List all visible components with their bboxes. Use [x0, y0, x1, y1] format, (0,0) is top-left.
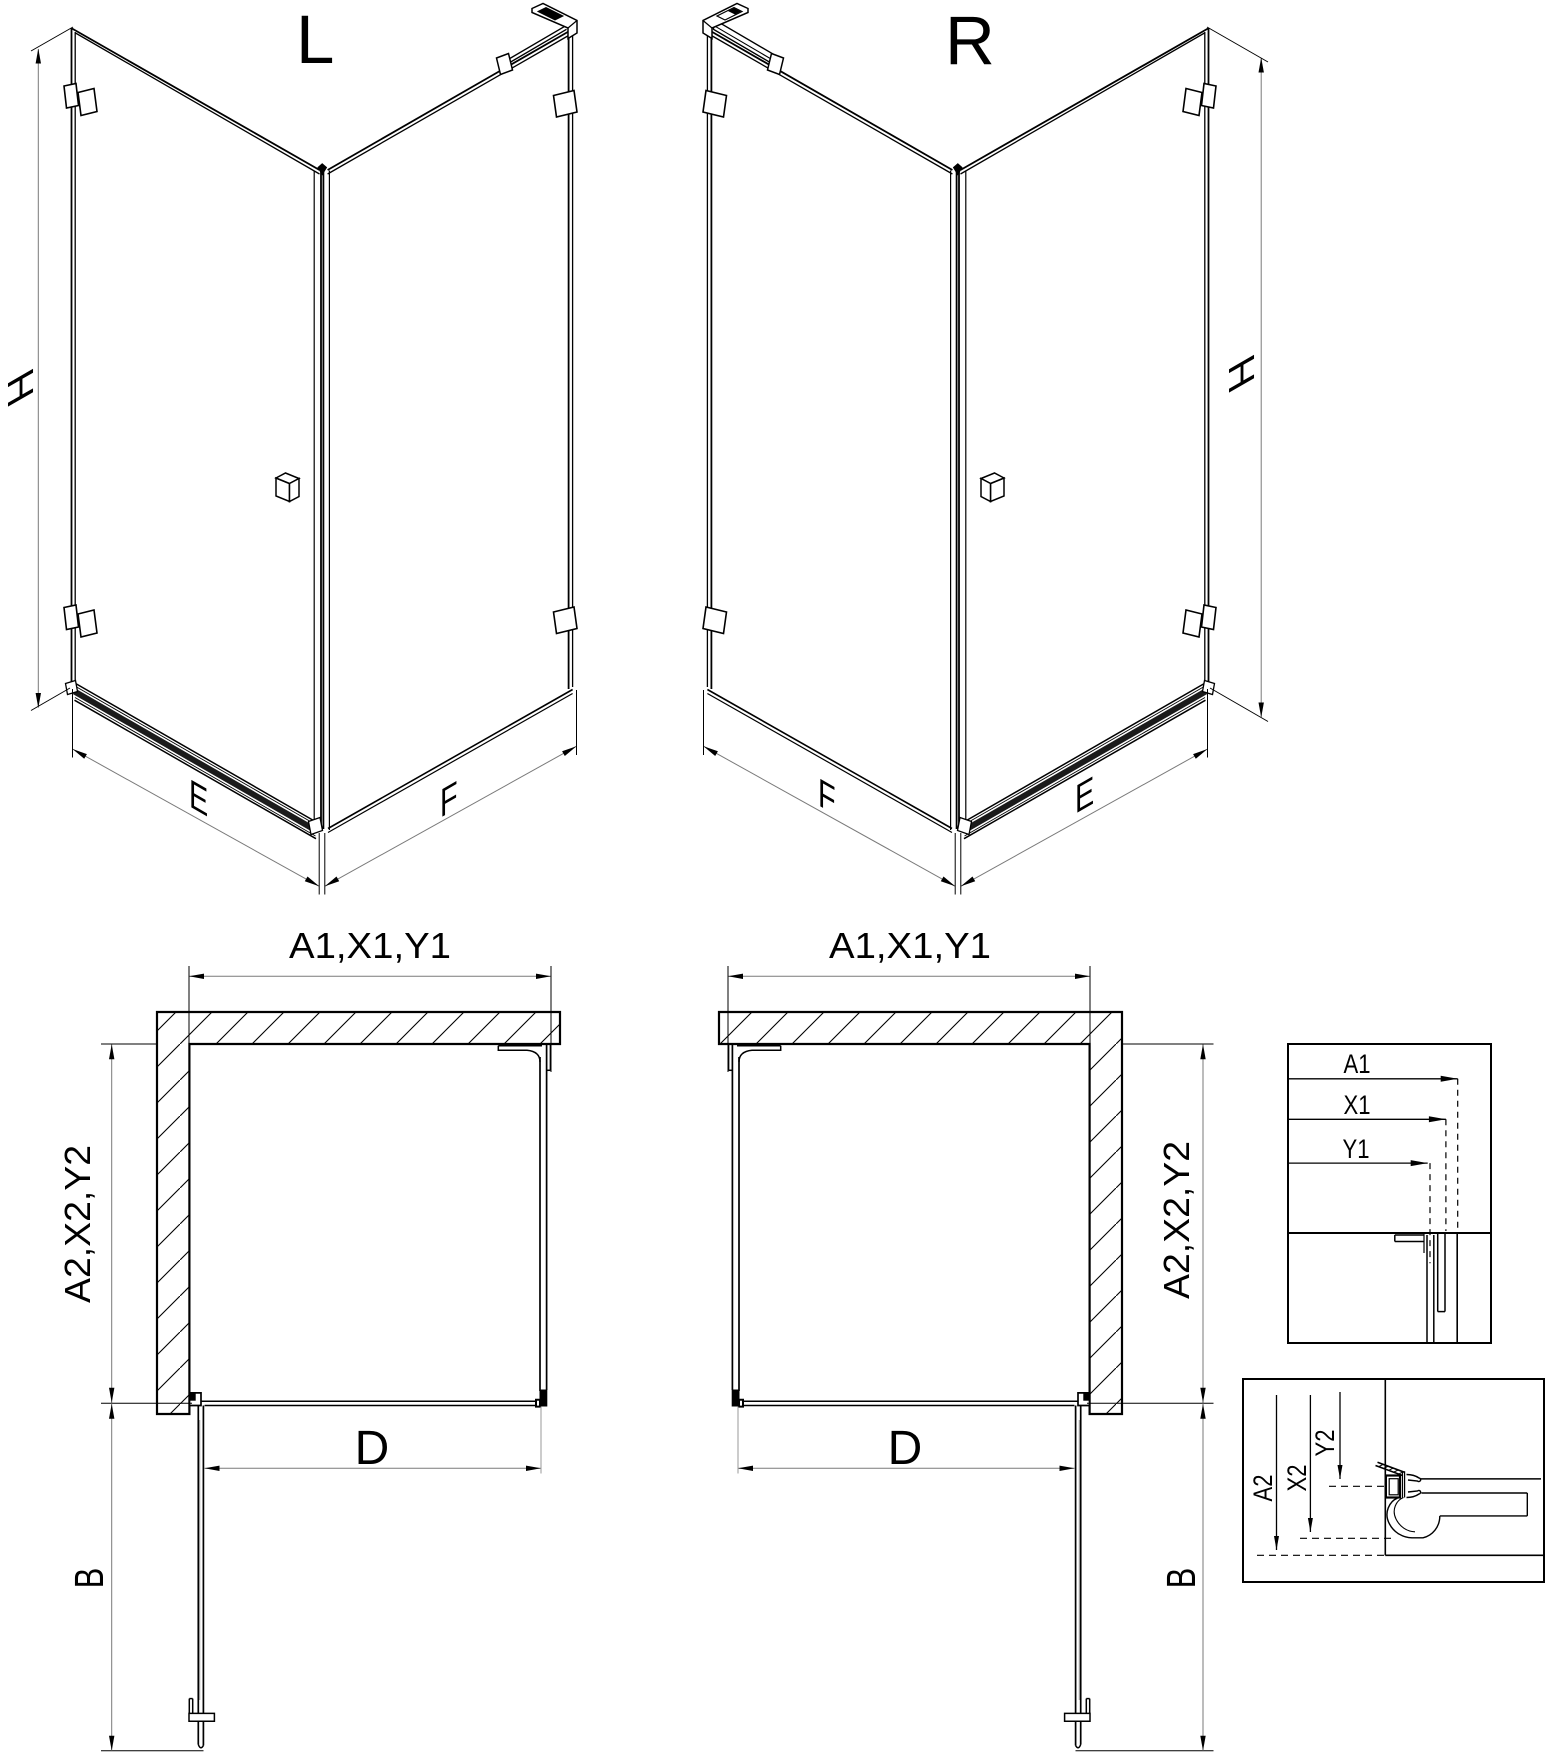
svg-text:L: L: [296, 1, 334, 78]
svg-text:A2: A2: [1248, 1475, 1278, 1502]
svg-text:Y1: Y1: [1343, 1134, 1370, 1164]
svg-text:D: D: [888, 1422, 923, 1475]
svg-text:X1: X1: [1344, 1090, 1371, 1120]
svg-text:A1,X1,Y1: A1,X1,Y1: [829, 925, 991, 966]
svg-text:B: B: [66, 1568, 112, 1589]
svg-text:A2,X2,Y2: A2,X2,Y2: [57, 1145, 98, 1303]
svg-text:X2: X2: [1282, 1465, 1312, 1492]
svg-text:A1: A1: [1344, 1049, 1371, 1079]
svg-text:Y2: Y2: [1310, 1430, 1340, 1457]
svg-text:B: B: [1158, 1568, 1204, 1589]
svg-text:A1,X1,Y1: A1,X1,Y1: [289, 925, 451, 966]
svg-text:R: R: [945, 2, 995, 79]
svg-text:D: D: [355, 1422, 390, 1475]
svg-text:A2,X2,Y2: A2,X2,Y2: [1156, 1141, 1197, 1299]
